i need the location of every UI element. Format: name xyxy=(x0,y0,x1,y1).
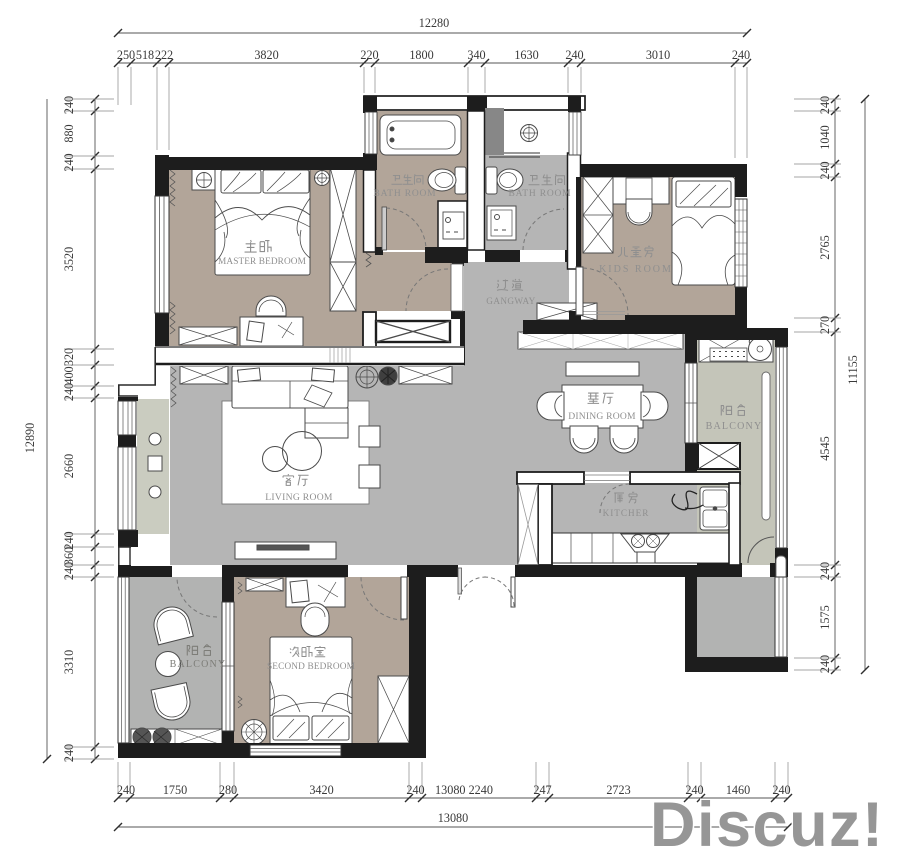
svg-text:MASTER BEDROOM: MASTER BEDROOM xyxy=(218,257,306,267)
svg-text:12280: 12280 xyxy=(419,16,449,30)
svg-text:BATH ROOM: BATH ROOM xyxy=(374,189,437,199)
svg-text:240: 240 xyxy=(62,153,76,171)
svg-text:BALCONY: BALCONY xyxy=(706,421,763,432)
svg-text:12890: 12890 xyxy=(23,423,37,453)
svg-text:240: 240 xyxy=(565,48,583,62)
svg-text:11155: 11155 xyxy=(846,355,860,385)
svg-text:13080: 13080 xyxy=(438,811,468,825)
svg-text:240: 240 xyxy=(818,562,832,580)
svg-text:240: 240 xyxy=(62,562,76,580)
svg-text:250: 250 xyxy=(117,48,135,62)
svg-text:13080 2240: 13080 2240 xyxy=(435,783,493,797)
svg-text:KIDS ROOM: KIDS ROOM xyxy=(599,264,673,275)
svg-text:2660: 2660 xyxy=(62,454,76,478)
svg-text:240: 240 xyxy=(117,783,135,797)
svg-text:222: 222 xyxy=(155,48,173,62)
svg-text:GANGWAY: GANGWAY xyxy=(486,296,535,306)
svg-text:240: 240 xyxy=(818,161,832,179)
svg-text:240: 240 xyxy=(62,96,76,114)
svg-text:3820: 3820 xyxy=(254,48,278,62)
svg-text:1750: 1750 xyxy=(163,783,187,797)
svg-text:400: 400 xyxy=(62,366,76,384)
svg-text:240: 240 xyxy=(818,96,832,114)
svg-text:240: 240 xyxy=(62,383,76,401)
svg-text:240: 240 xyxy=(818,655,832,673)
svg-text:3520: 3520 xyxy=(62,247,76,271)
svg-text:240: 240 xyxy=(406,783,424,797)
svg-text:3010: 3010 xyxy=(646,48,670,62)
svg-text:2723: 2723 xyxy=(606,783,630,797)
svg-text:280: 280 xyxy=(219,783,237,797)
svg-text:240: 240 xyxy=(62,744,76,762)
svg-text:220: 220 xyxy=(360,48,378,62)
svg-text:1040: 1040 xyxy=(818,125,832,149)
svg-text:SECOND BEDROOM: SECOND BEDROOM xyxy=(267,662,355,672)
svg-text:1800: 1800 xyxy=(409,48,433,62)
svg-text:BATH ROOM: BATH ROOM xyxy=(509,189,572,199)
svg-text:DINING ROOM: DINING ROOM xyxy=(568,411,636,422)
svg-text:270: 270 xyxy=(818,316,832,334)
svg-text:240: 240 xyxy=(732,48,750,62)
svg-text:340: 340 xyxy=(467,48,485,62)
svg-text:247: 247 xyxy=(533,783,551,797)
svg-text:2765: 2765 xyxy=(818,235,832,259)
svg-text:3420: 3420 xyxy=(309,783,333,797)
svg-text:518: 518 xyxy=(136,48,154,62)
svg-text:LIVING ROOM: LIVING ROOM xyxy=(265,492,333,503)
svg-text:Discuz!: Discuz! xyxy=(650,790,885,850)
svg-text:3310: 3310 xyxy=(62,650,76,674)
svg-text:4545: 4545 xyxy=(818,436,832,460)
svg-text:KITCHER: KITCHER xyxy=(603,508,650,518)
svg-text:320: 320 xyxy=(62,348,76,366)
svg-text:880: 880 xyxy=(62,124,76,142)
svg-text:BALCONY: BALCONY xyxy=(170,659,227,670)
svg-text:1630: 1630 xyxy=(514,48,538,62)
svg-text:1575: 1575 xyxy=(818,605,832,629)
